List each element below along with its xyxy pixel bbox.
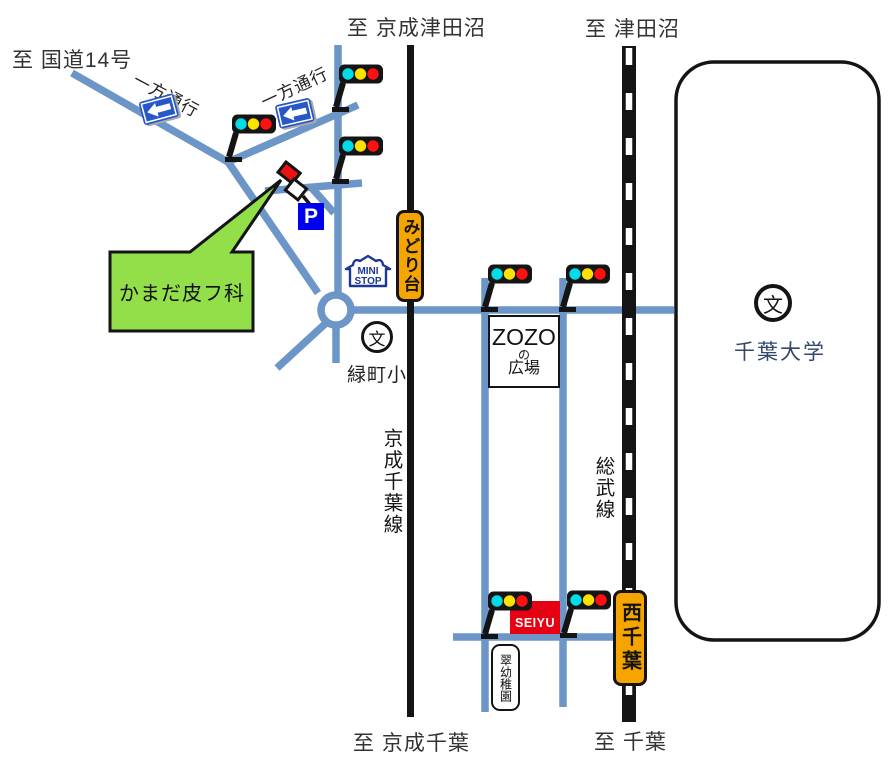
access-map: 至 国道14号 至 京成津田沼 至 津田沼 至 京成千葉 至 千葉 京成千葉線 … — [0, 0, 894, 766]
dest-chiba-label: 至 千葉 — [594, 726, 667, 756]
kindergarten-box: 翠幼稚園 — [491, 644, 520, 711]
parking-sign: P — [298, 203, 324, 230]
roundabout — [321, 295, 351, 325]
road-sw-spoke — [277, 323, 326, 368]
midoricho-school-label: 緑町小 — [347, 360, 407, 387]
traffic-light-icon — [556, 588, 612, 642]
dest-keisei-chiba-label: 至 京成千葉 — [353, 727, 470, 757]
sobu-line-label: 総武線 — [589, 456, 618, 521]
zozo-square: ZOZO の 広場 — [488, 315, 560, 388]
zozo-line1: ZOZO — [492, 325, 556, 349]
dest-route14-label: 至 国道14号 — [12, 44, 132, 74]
dest-keisei-tsudanuma-label: 至 京成津田沼 — [347, 12, 486, 42]
ministop-text-2: STOP — [354, 276, 381, 287]
school-symbol-char: 文 — [369, 325, 386, 350]
traffic-light-icon — [328, 134, 384, 188]
clinic-name-label: かまだ皮フ科 — [112, 254, 252, 328]
school-symbol-icon: 文 — [361, 321, 393, 353]
traffic-light-icon — [328, 62, 384, 116]
chiba-university-label: 千葉大学 — [734, 336, 826, 366]
university-symbol-icon: 文 — [754, 284, 792, 322]
ministop-icon: MINI STOP — [343, 254, 393, 289]
dest-tsudanuma-label: 至 津田沼 — [585, 13, 680, 43]
traffic-light-icon — [555, 262, 611, 316]
traffic-light-icon — [477, 262, 533, 316]
map-base-layer — [0, 0, 894, 766]
station-nishichiba: 西千葉 — [613, 590, 647, 686]
zozo-line3: 広場 — [508, 361, 540, 378]
traffic-light-icon — [221, 112, 277, 166]
traffic-light-icon — [477, 589, 533, 643]
keisei-line-label: 京成千葉線 — [377, 428, 406, 536]
university-symbol-char: 文 — [763, 289, 783, 318]
station-midoridai: みどり台 — [396, 210, 424, 302]
